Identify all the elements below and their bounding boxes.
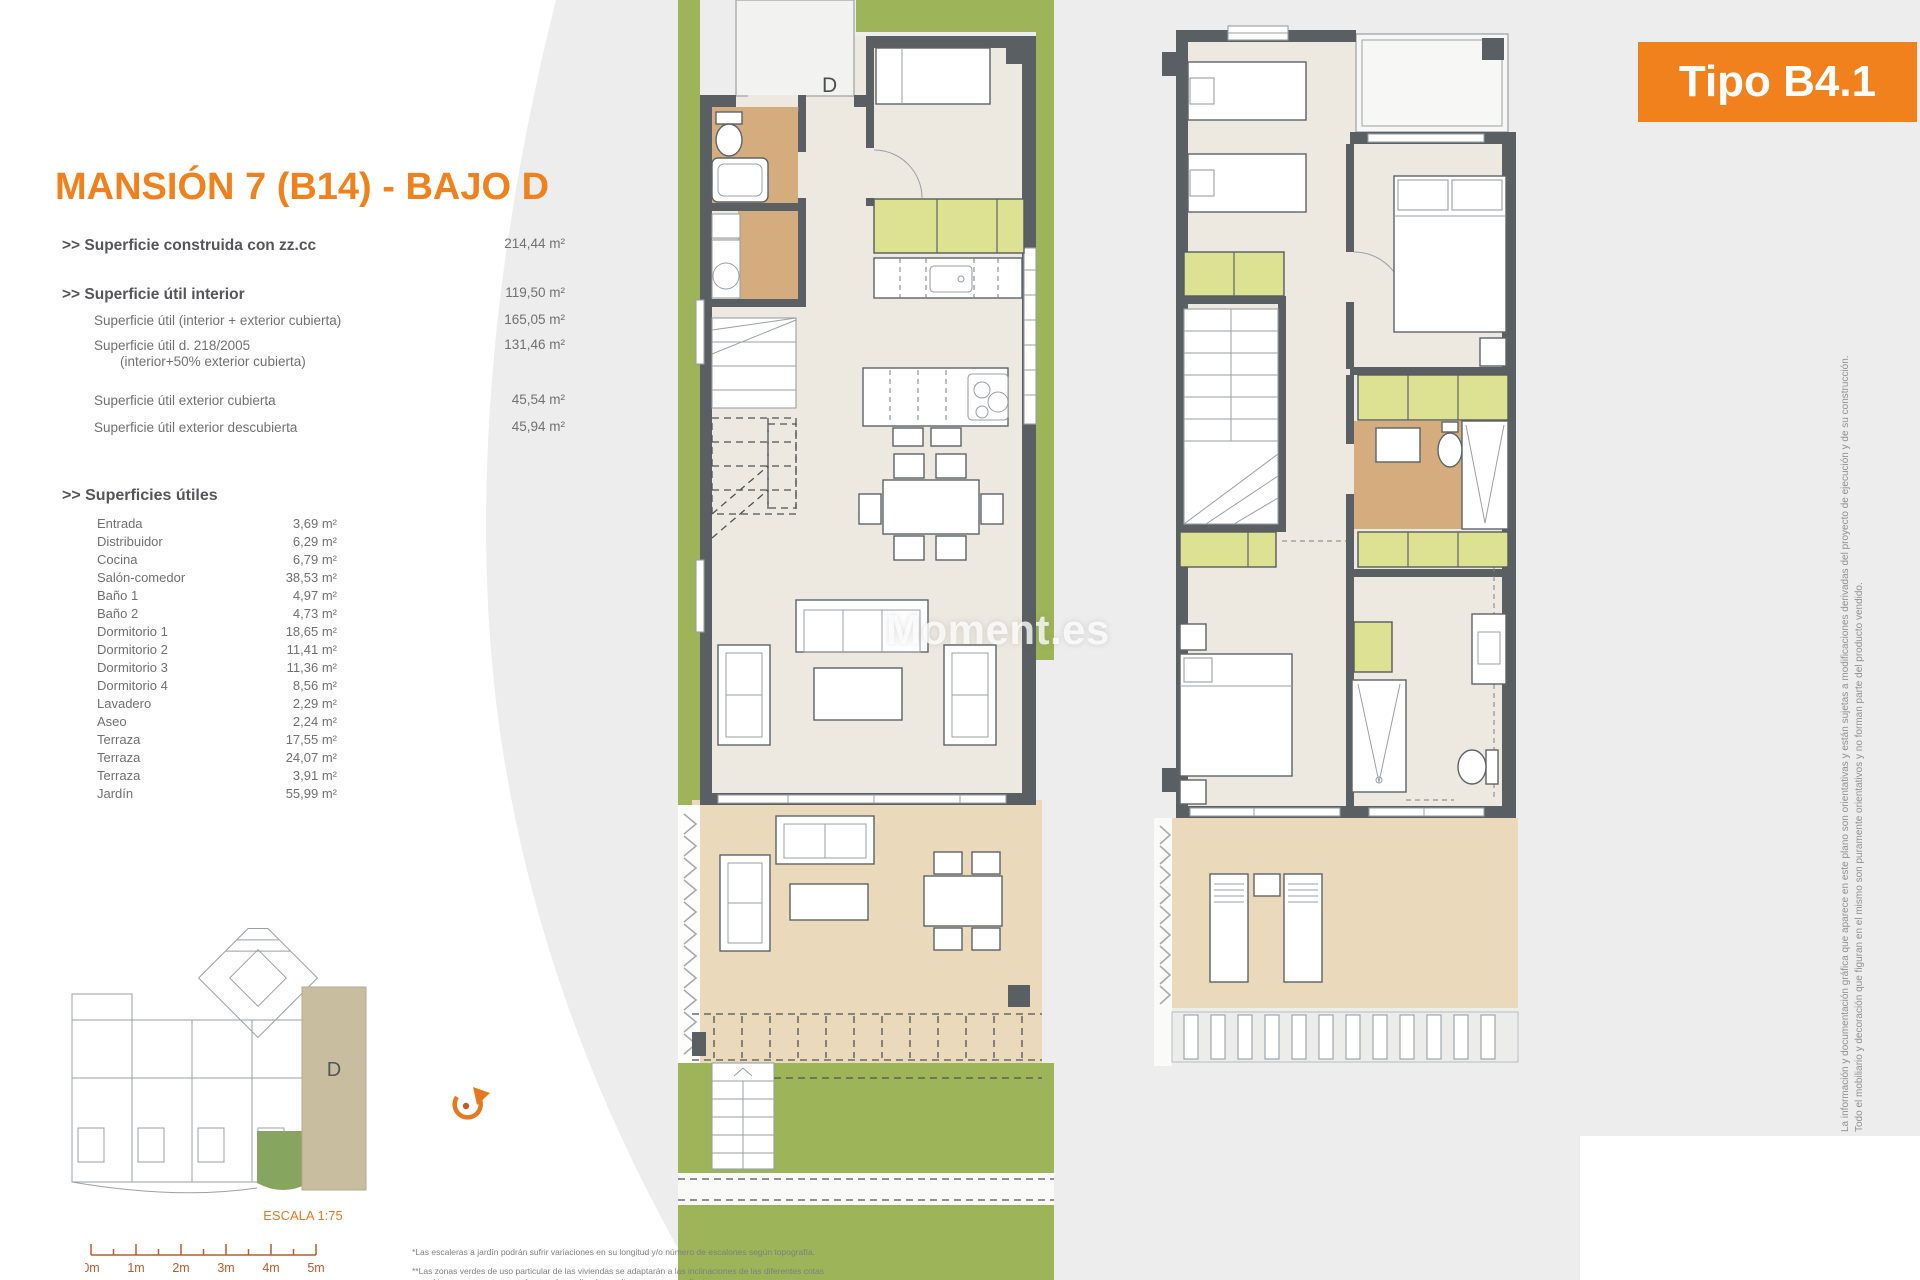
ruler-tick-label: 5m xyxy=(307,1261,324,1275)
room-area: 2,24 m² xyxy=(293,713,337,731)
disclaimer-line: Todo el mobiliario y decoración que figu… xyxy=(1854,182,1865,1132)
ruler-tick-label: 2m xyxy=(172,1261,189,1275)
room-row: Dormitorio 48,56 m² xyxy=(97,677,337,695)
summary-label: Superficie útil (interior + exterior cub… xyxy=(62,312,341,329)
room-row: Entrada3,69 m² xyxy=(97,515,337,533)
summary-row: Superficie útil (interior + exterior cub… xyxy=(62,312,565,329)
room-area: 3,91 m² xyxy=(293,767,337,785)
room-row: Aseo2,24 m² xyxy=(97,713,337,731)
upper-terrace xyxy=(1356,34,1508,132)
useful-areas-title: >> Superficies útiles xyxy=(62,487,218,505)
entry-porch: D xyxy=(700,0,854,97)
room-name: Terraza xyxy=(97,767,140,785)
scale-ruler: 0m 1m 2m 3m 4m 5m xyxy=(85,1242,325,1278)
summary-value: 45,54 m² xyxy=(512,392,565,407)
location-units-angled xyxy=(199,928,318,1037)
room-area: 6,29 m² xyxy=(293,533,337,551)
room-name: Dormitorio 1 xyxy=(97,623,168,641)
summary-row: Superficie útil d. 218/2005(interior+50%… xyxy=(62,337,565,370)
room-row: Terraza3,91 m² xyxy=(97,767,337,785)
room-area: 8,56 m² xyxy=(293,677,337,695)
watermark: Moment.es xyxy=(886,606,1110,654)
room-name: Baño 1 xyxy=(97,587,138,605)
scale-label: ESCALA 1:75 xyxy=(238,1208,368,1223)
surface-summary: >> Superficie construida con zz.cc 214,4… xyxy=(62,236,565,436)
room-area: 17,55 m² xyxy=(286,731,337,749)
room-name: Salón-comedor xyxy=(97,569,185,587)
room-area: 4,73 m² xyxy=(293,605,337,623)
room-name: Jardín xyxy=(97,785,133,803)
room-name: Terraza xyxy=(97,749,140,767)
location-garden-patch xyxy=(257,1131,309,1190)
room-row: Distribuidor6,29 m² xyxy=(97,533,337,551)
room-area: 11,36 m² xyxy=(287,659,337,677)
compass-icon xyxy=(455,1087,490,1117)
room-area: 6,79 m² xyxy=(293,551,337,569)
room-area: 24,07 m² xyxy=(286,749,337,767)
location-miniplan: D xyxy=(58,928,498,1208)
room-name: Distribuidor xyxy=(97,533,163,551)
room-row: Dormitorio 311,36 m² xyxy=(97,659,337,677)
summary-row: >> Superficie construida con zz.cc 214,4… xyxy=(62,236,565,255)
summary-label: >> Superficie útil interior xyxy=(62,285,245,304)
plan-sheet: MANSIÓN 7 (B14) - BAJO D >> Superficie c… xyxy=(0,0,1920,1280)
room-name: Aseo xyxy=(97,713,127,731)
room-name: Dormitorio 3 xyxy=(97,659,168,677)
ruler-tick-label: 0m xyxy=(85,1261,100,1275)
room-area: 4,97 m² xyxy=(293,587,337,605)
room-row: Dormitorio 211,41 m² xyxy=(97,641,337,659)
summary-label: Superficie útil exterior cubierta xyxy=(62,392,276,409)
page-title: MANSIÓN 7 (B14) - BAJO D xyxy=(55,166,549,209)
footnote: **Las zonas verdes de uso particular de … xyxy=(412,1266,1052,1276)
room-name: Lavadero xyxy=(97,695,151,713)
summary-row: Superficie útil exterior cubierta 45,54 … xyxy=(62,392,565,409)
room-area: 18,65 m² xyxy=(286,623,337,641)
room-name: Terraza xyxy=(97,731,140,749)
ruler-tick-label: 4m xyxy=(262,1261,279,1275)
summary-value: 165,05 m² xyxy=(504,312,565,327)
room-area: 55,99 m² xyxy=(286,785,337,803)
bathroom xyxy=(712,107,798,299)
summary-label: >> Superficie construida con zz.cc xyxy=(62,236,316,255)
summary-value: 45,94 m² xyxy=(512,419,565,434)
unit-letter: D xyxy=(822,74,837,97)
room-name: Cocina xyxy=(97,551,137,569)
room-row: Salón-comedor38,53 m² xyxy=(97,569,337,587)
summary-row: Superficie útil exterior descubierta 45,… xyxy=(62,419,565,436)
summary-row: >> Superficie útil interior 119,50 m² xyxy=(62,285,565,304)
summary-label: Superficie útil exterior descubierta xyxy=(62,419,297,436)
type-badge: Tipo B4.1 xyxy=(1638,42,1917,122)
location-unit-highlight: D xyxy=(302,987,366,1190)
summary-value: 131,46 m² xyxy=(504,337,565,352)
room-area: 2,29 m² xyxy=(293,695,337,713)
room-area: 38,53 m² xyxy=(286,569,337,587)
room-name: Dormitorio 4 xyxy=(97,677,168,695)
room-row: Cocina6,79 m² xyxy=(97,551,337,569)
logo-placeholder-box xyxy=(1580,1136,1920,1280)
room-area: 11,41 m² xyxy=(287,641,337,659)
type-badge-label: Tipo B4.1 xyxy=(1679,57,1876,107)
summary-label: Superficie útil d. 218/2005(interior+50%… xyxy=(62,337,306,370)
room-area: 3,69 m² xyxy=(293,515,337,533)
room-row: Baño 14,97 m² xyxy=(97,587,337,605)
louver-band xyxy=(1172,1012,1518,1062)
stairs xyxy=(1184,309,1278,524)
room-row: Jardín55,99 m² xyxy=(97,785,337,803)
ruler-tick-label: 1m xyxy=(127,1261,144,1275)
room-name: Entrada xyxy=(97,515,143,533)
floorplan-upper xyxy=(1154,24,1532,1066)
room-name: Baño 2 xyxy=(97,605,138,623)
ruler-tick-label: 3m xyxy=(217,1261,234,1275)
room-row: Lavadero2,29 m² xyxy=(97,695,337,713)
summary-value: 119,50 m² xyxy=(505,285,565,300)
room-row: Terraza24,07 m² xyxy=(97,749,337,767)
summary-label-line2: (interior+50% exterior cubierta) xyxy=(94,354,306,370)
location-unit-letter: D xyxy=(327,1059,341,1081)
footnote: *Las escaleras a jardín podrán sufrir va… xyxy=(412,1247,1052,1257)
room-row: Baño 24,73 m² xyxy=(97,605,337,623)
summary-value: 214,44 m² xyxy=(504,236,565,251)
room-list: Entrada3,69 m²Distribuidor6,29 m²Cocina6… xyxy=(97,515,337,803)
room-name: Dormitorio 2 xyxy=(97,641,168,659)
room-row: Dormitorio 118,65 m² xyxy=(97,623,337,641)
room-row: Terraza17,55 m² xyxy=(97,731,337,749)
disclaimer-line: La información y documentación gráfica q… xyxy=(1840,182,1851,1132)
